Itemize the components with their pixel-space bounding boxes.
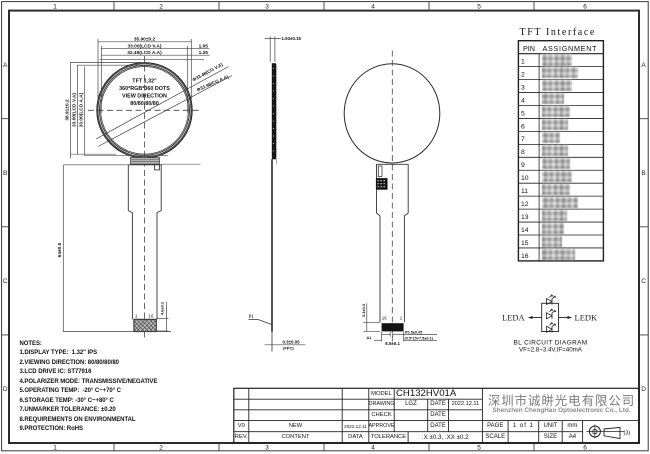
svg-text:(3): (3) <box>624 430 631 436</box>
